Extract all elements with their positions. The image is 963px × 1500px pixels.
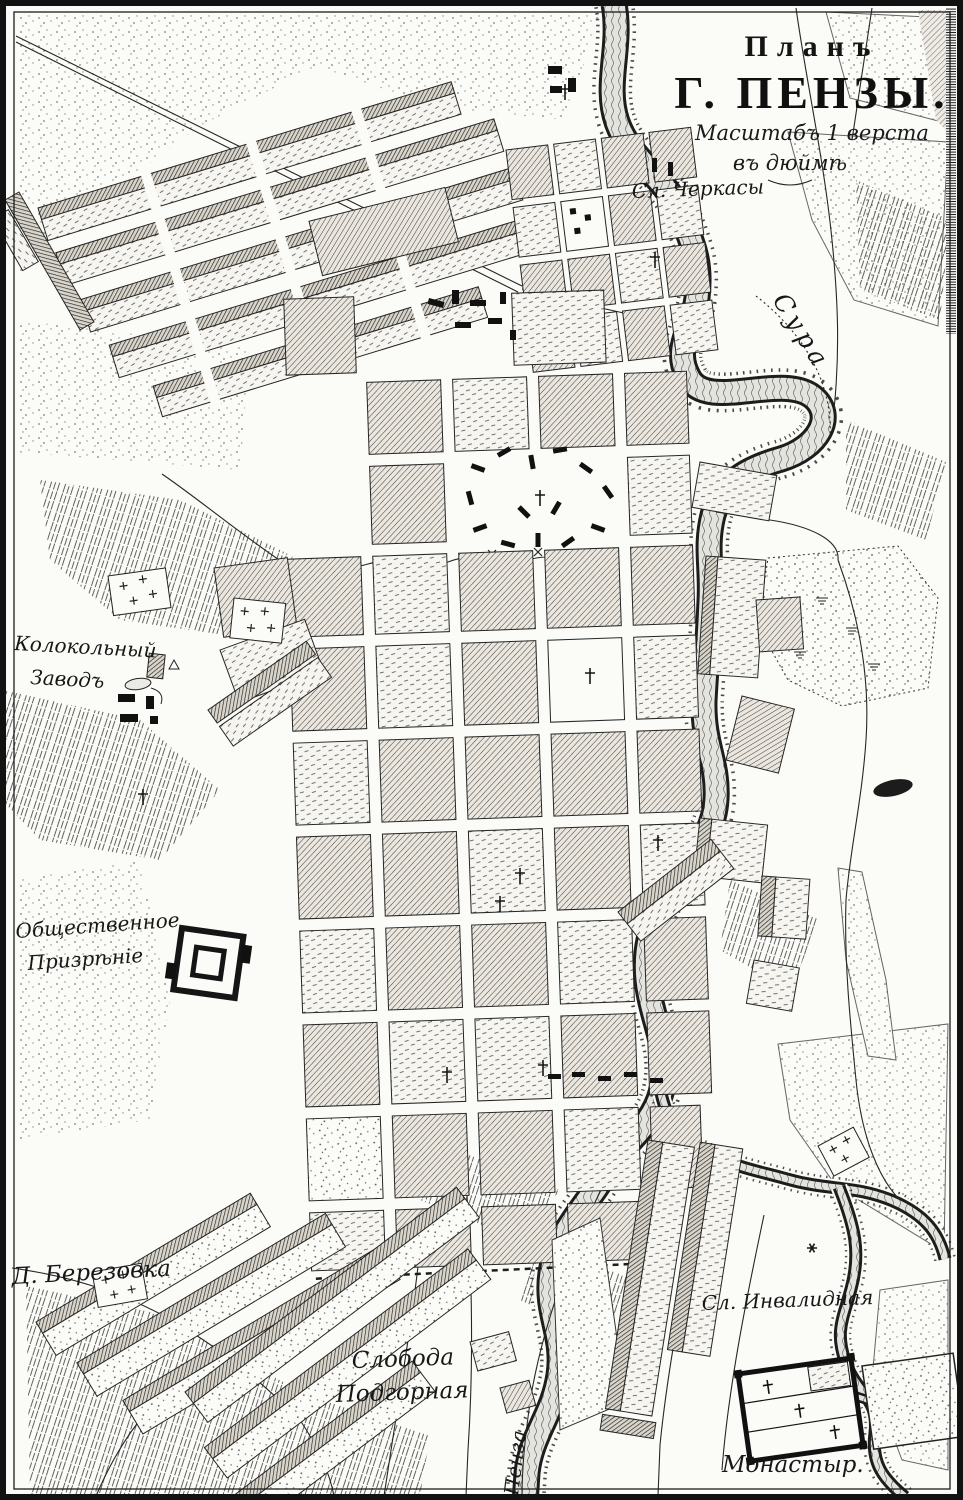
map-title-word: Планъ	[745, 30, 880, 63]
label-podgornaya-2: Подгорная	[334, 1377, 469, 1408]
label-podgornaya-1: Слобода	[351, 1344, 454, 1374]
label-bell-factory-2: Заводъ	[30, 665, 105, 693]
map-title-city: Г. ПЕНЗЫ.	[674, 67, 949, 118]
monastery-field	[862, 1353, 963, 1449]
map-scale-line2: въ дюймѣ	[733, 151, 847, 175]
label-monastery: Монастыр.	[721, 1452, 864, 1478]
map-scale-line1: Масштабъ 1 верста	[694, 121, 929, 145]
penza-plan-map: Сл. Черкасы Сура Колокольный Заводъ Обще…	[0, 0, 963, 1500]
map-page: Сл. Черкасы Сура Колокольный Заводъ Обще…	[0, 0, 963, 1500]
label-cherkasy: Сл. Черкасы	[631, 174, 764, 203]
monastery-complex	[733, 1353, 867, 1466]
edge-hatch-strip	[946, 8, 956, 334]
